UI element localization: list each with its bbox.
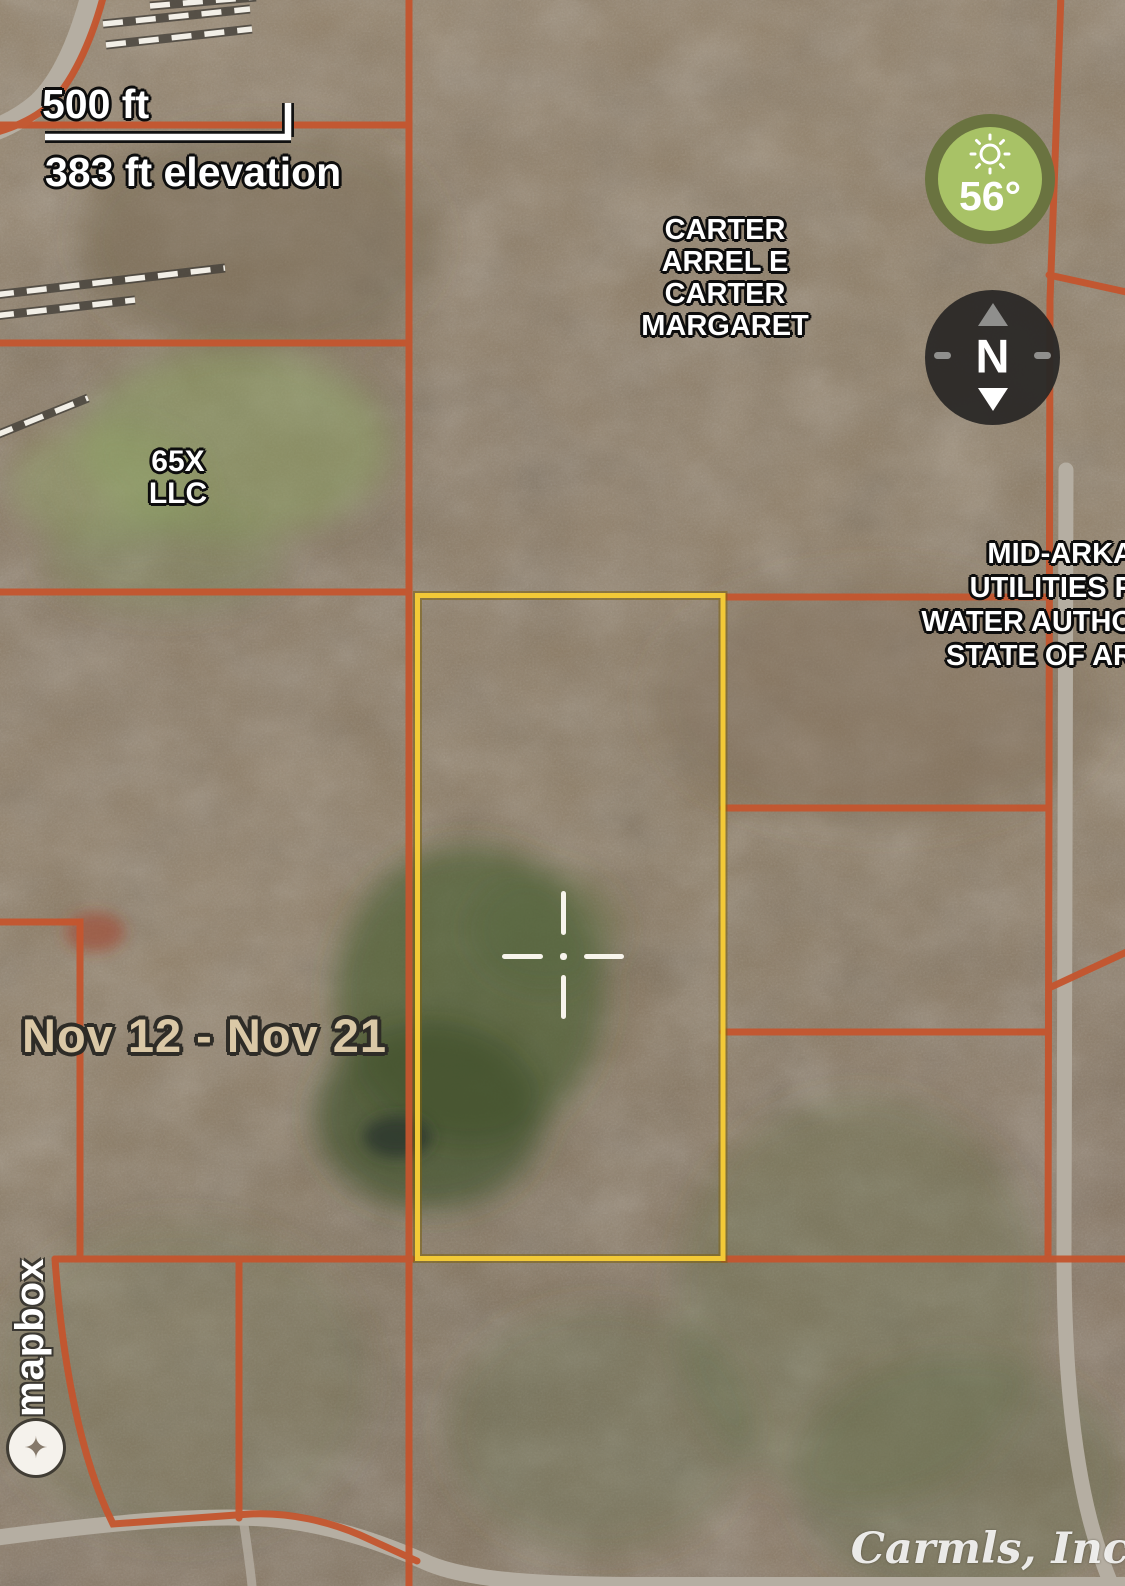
south-arrow-icon	[978, 388, 1008, 411]
owner-line: STATE OF AR	[714, 639, 1125, 673]
owner-line: LLC	[78, 478, 278, 510]
mapbox-logo-icon[interactable]: ✦	[9, 1421, 63, 1475]
mapbox-star-glyph: ✦	[23, 1431, 48, 1466]
parcel-owner-label-utility: MID-ARKA UTILITIES P WATER AUTHO STATE O…	[714, 537, 1125, 673]
parcel-owner-label-65x-llc: 65X LLC	[78, 446, 278, 510]
date-range-label: Nov 12 - Nov 21	[22, 1010, 387, 1063]
owner-line: UTILITIES P	[714, 571, 1125, 605]
map-canvas[interactable]: 500 ft 383 ft elevation CARTER ARREL E C…	[0, 0, 1125, 1586]
owner-line: WATER AUTHO	[714, 605, 1125, 639]
weather-widget[interactable]: 56°	[925, 114, 1055, 244]
temperature-label: 56°	[959, 173, 1021, 220]
elevation-label: 383 ft elevation	[45, 150, 341, 196]
owner-line: MID-ARKA	[714, 537, 1125, 571]
owner-line: ARREL E	[575, 246, 875, 278]
mapbox-logo-text[interactable]: mapbox	[8, 1202, 54, 1417]
owner-line: CARTER	[575, 214, 875, 246]
map-imagery-layer	[0, 0, 1125, 1586]
east-tick-icon	[1034, 352, 1051, 359]
compass-widget[interactable]: N	[925, 290, 1060, 425]
owner-line: 65X	[78, 446, 278, 478]
west-tick-icon	[934, 352, 951, 359]
north-arrow-icon	[978, 303, 1008, 326]
scale-label: 500 ft	[42, 82, 149, 128]
sun-icon	[967, 133, 1013, 175]
parcel-owner-label-carter: CARTER ARREL E CARTER MARGARET	[575, 214, 875, 342]
owner-line: MARGARET	[575, 310, 875, 342]
brokerage-watermark: Carmls, Inc	[851, 1524, 1125, 1574]
owner-line: CARTER	[575, 278, 875, 310]
